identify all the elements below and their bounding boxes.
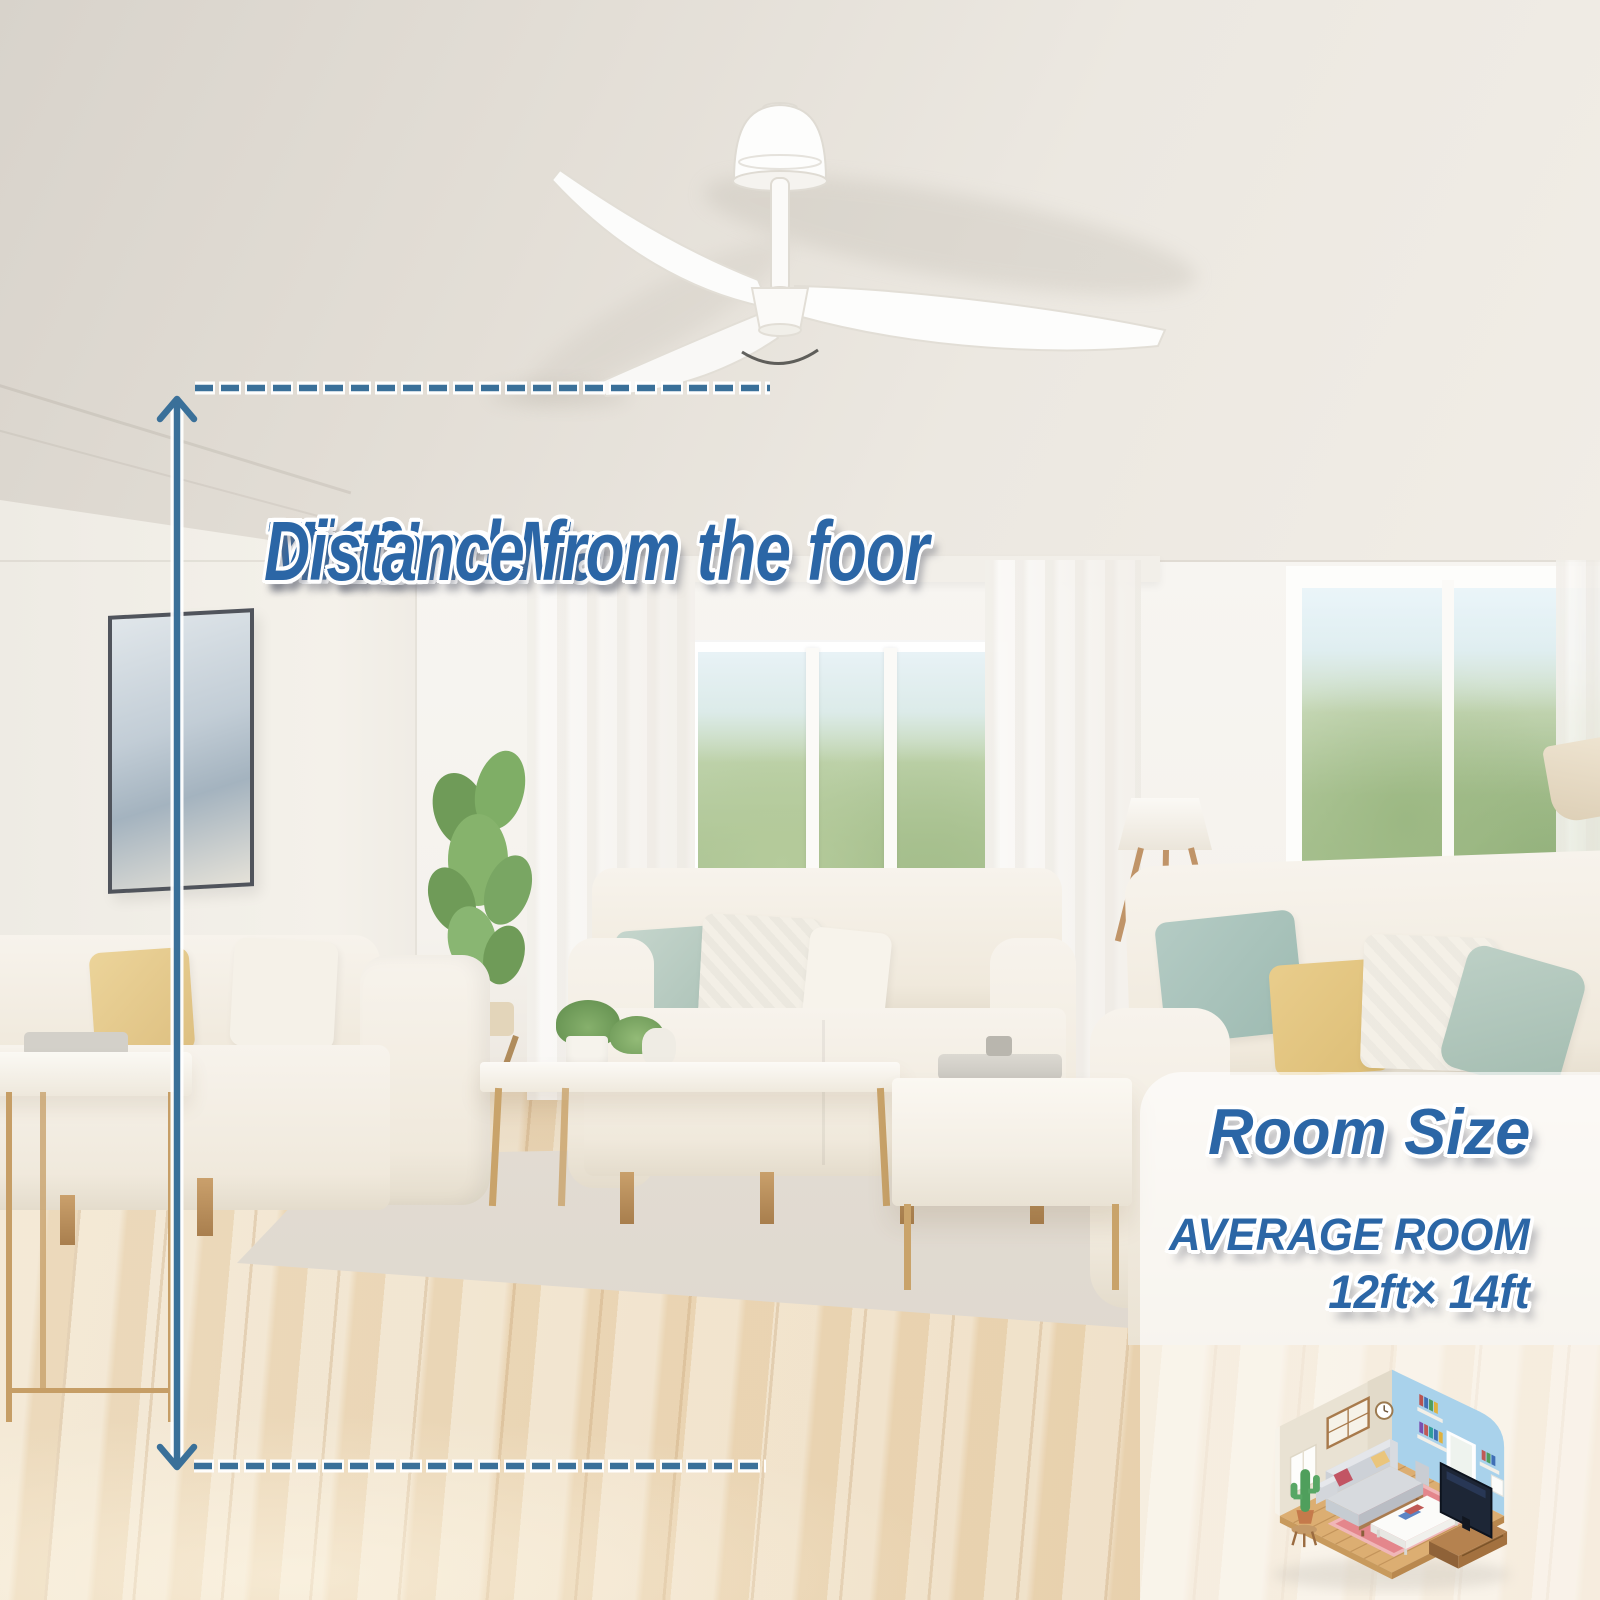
room-size-subtitle: AVERAGE ROOM xyxy=(1169,1209,1530,1261)
room-size-dimensions: 12ft× 14ft xyxy=(1329,1264,1530,1319)
table-leg xyxy=(1112,1204,1119,1290)
height-range-text2: Distance from the foor xyxy=(264,500,928,602)
room-size-title: Room Size xyxy=(1208,1094,1530,1169)
sofa-leg xyxy=(60,1195,75,1245)
decor-item xyxy=(986,1036,1012,1056)
coffee-table-left xyxy=(480,1062,900,1092)
cushion-seam xyxy=(822,1020,825,1165)
table-frame-bar xyxy=(6,1388,174,1393)
side-table xyxy=(0,1052,192,1096)
white-pillow xyxy=(229,937,339,1050)
ceiling xyxy=(0,0,1600,566)
sofa-leg xyxy=(760,1172,774,1224)
table-leg xyxy=(6,1092,12,1422)
decor-tray xyxy=(938,1054,1062,1080)
table-leg xyxy=(904,1204,911,1290)
table-leg xyxy=(168,1092,174,1422)
sofa-leg xyxy=(620,1172,634,1224)
isometric-room-illustration xyxy=(1236,1352,1548,1596)
coffee-table-right xyxy=(892,1078,1132,1206)
wall-art xyxy=(108,608,254,894)
table-leg xyxy=(40,1092,46,1392)
floor-lamp-shade xyxy=(1118,798,1212,850)
product-infographic: 7'-10' Min and Max Distance from the foo… xyxy=(0,0,1600,1600)
sofa-leg xyxy=(197,1178,213,1236)
